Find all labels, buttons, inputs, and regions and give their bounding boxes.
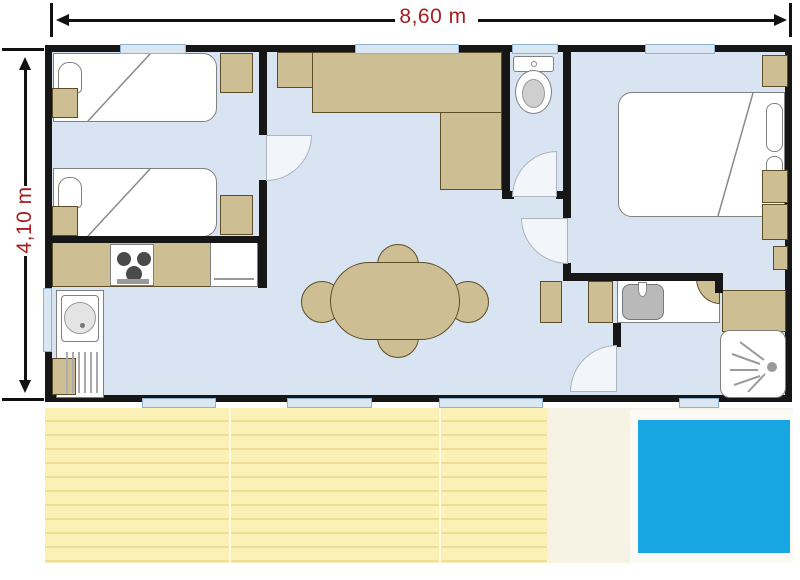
window-kitchen-side xyxy=(43,288,52,352)
width-dimension-label: 8,60 m xyxy=(385,5,481,29)
cabinet-bed-1-foot xyxy=(220,53,253,93)
wall-twinroom-right-upper xyxy=(259,52,267,135)
hob-control-bar xyxy=(117,279,149,284)
dim-tick-top-left xyxy=(50,3,53,37)
dim-arrow-up-icon xyxy=(19,57,31,70)
washbasin-tap xyxy=(638,282,647,297)
window-bottom-1 xyxy=(142,398,216,408)
pillow-bed-2 xyxy=(58,177,82,208)
wardrobe-right-2 xyxy=(762,204,788,240)
height-dimension-label: 4,10 m xyxy=(13,175,37,265)
dim-arrow-down-icon xyxy=(19,380,31,393)
dim-line-top-b xyxy=(478,19,775,22)
terrace-deck xyxy=(45,408,547,563)
deck-divider-1 xyxy=(229,408,231,563)
dining-table xyxy=(330,262,460,340)
wall-twinroom-right-lower xyxy=(259,180,267,242)
dim-tick-top-right xyxy=(789,3,792,37)
hall-cabinet-right xyxy=(588,281,613,323)
deck-divider-2 xyxy=(439,408,441,563)
dim-tick-left-bottom xyxy=(2,398,44,401)
wall-master-left-upper xyxy=(563,52,571,218)
toilet-button xyxy=(531,61,537,67)
wall-bathroom-corner-stub xyxy=(715,281,723,293)
window-bottom-3 xyxy=(679,398,719,408)
double-bed xyxy=(618,92,785,217)
hall-cabinet-left xyxy=(540,281,562,323)
wardrobe-top-corner xyxy=(762,55,788,87)
window-living xyxy=(355,44,459,54)
hob-burner-2 xyxy=(137,252,151,266)
dim-arrow-right-icon xyxy=(774,14,787,26)
toilet-bowl-inner xyxy=(522,79,545,108)
window-wc xyxy=(512,44,558,54)
window-master xyxy=(645,44,715,54)
cabinet-bed-2-foot xyxy=(220,195,253,235)
wall-kitchen-right xyxy=(258,243,267,288)
wall-twinroom-bottom xyxy=(52,236,267,243)
window-bottom-2 xyxy=(287,398,372,408)
sink-drain xyxy=(80,323,85,328)
hob-burner-1 xyxy=(117,252,131,266)
worktop-drawer-line xyxy=(214,278,254,280)
cabinet-bed-corner xyxy=(773,246,788,270)
drainer-ribs xyxy=(66,352,102,393)
sofa-armrest xyxy=(277,52,313,88)
nightstand-2 xyxy=(52,206,78,236)
nightstand-1 xyxy=(52,88,78,118)
pillow-master-1 xyxy=(766,103,783,152)
dim-line-top-a xyxy=(68,19,395,22)
patio-door xyxy=(439,398,543,408)
shower-tray xyxy=(720,330,786,398)
sofa-corner xyxy=(440,112,502,190)
wardrobe-right-1 xyxy=(762,170,788,203)
window-twinroom xyxy=(120,44,186,54)
sink-bowl xyxy=(64,302,96,334)
paddling-pool xyxy=(638,420,790,553)
wall-wc-left xyxy=(502,52,510,197)
wall-master-bottom xyxy=(563,273,723,281)
dim-line-left-b xyxy=(24,256,27,380)
floor-plan: 8,60 m 4,10 m xyxy=(0,0,800,580)
dim-tick-left-top xyxy=(2,48,44,51)
dim-line-left-a xyxy=(24,70,27,186)
bathroom-counter xyxy=(722,290,786,332)
wall-bathroom-left-stub xyxy=(613,323,621,347)
sofa-back xyxy=(312,52,502,113)
